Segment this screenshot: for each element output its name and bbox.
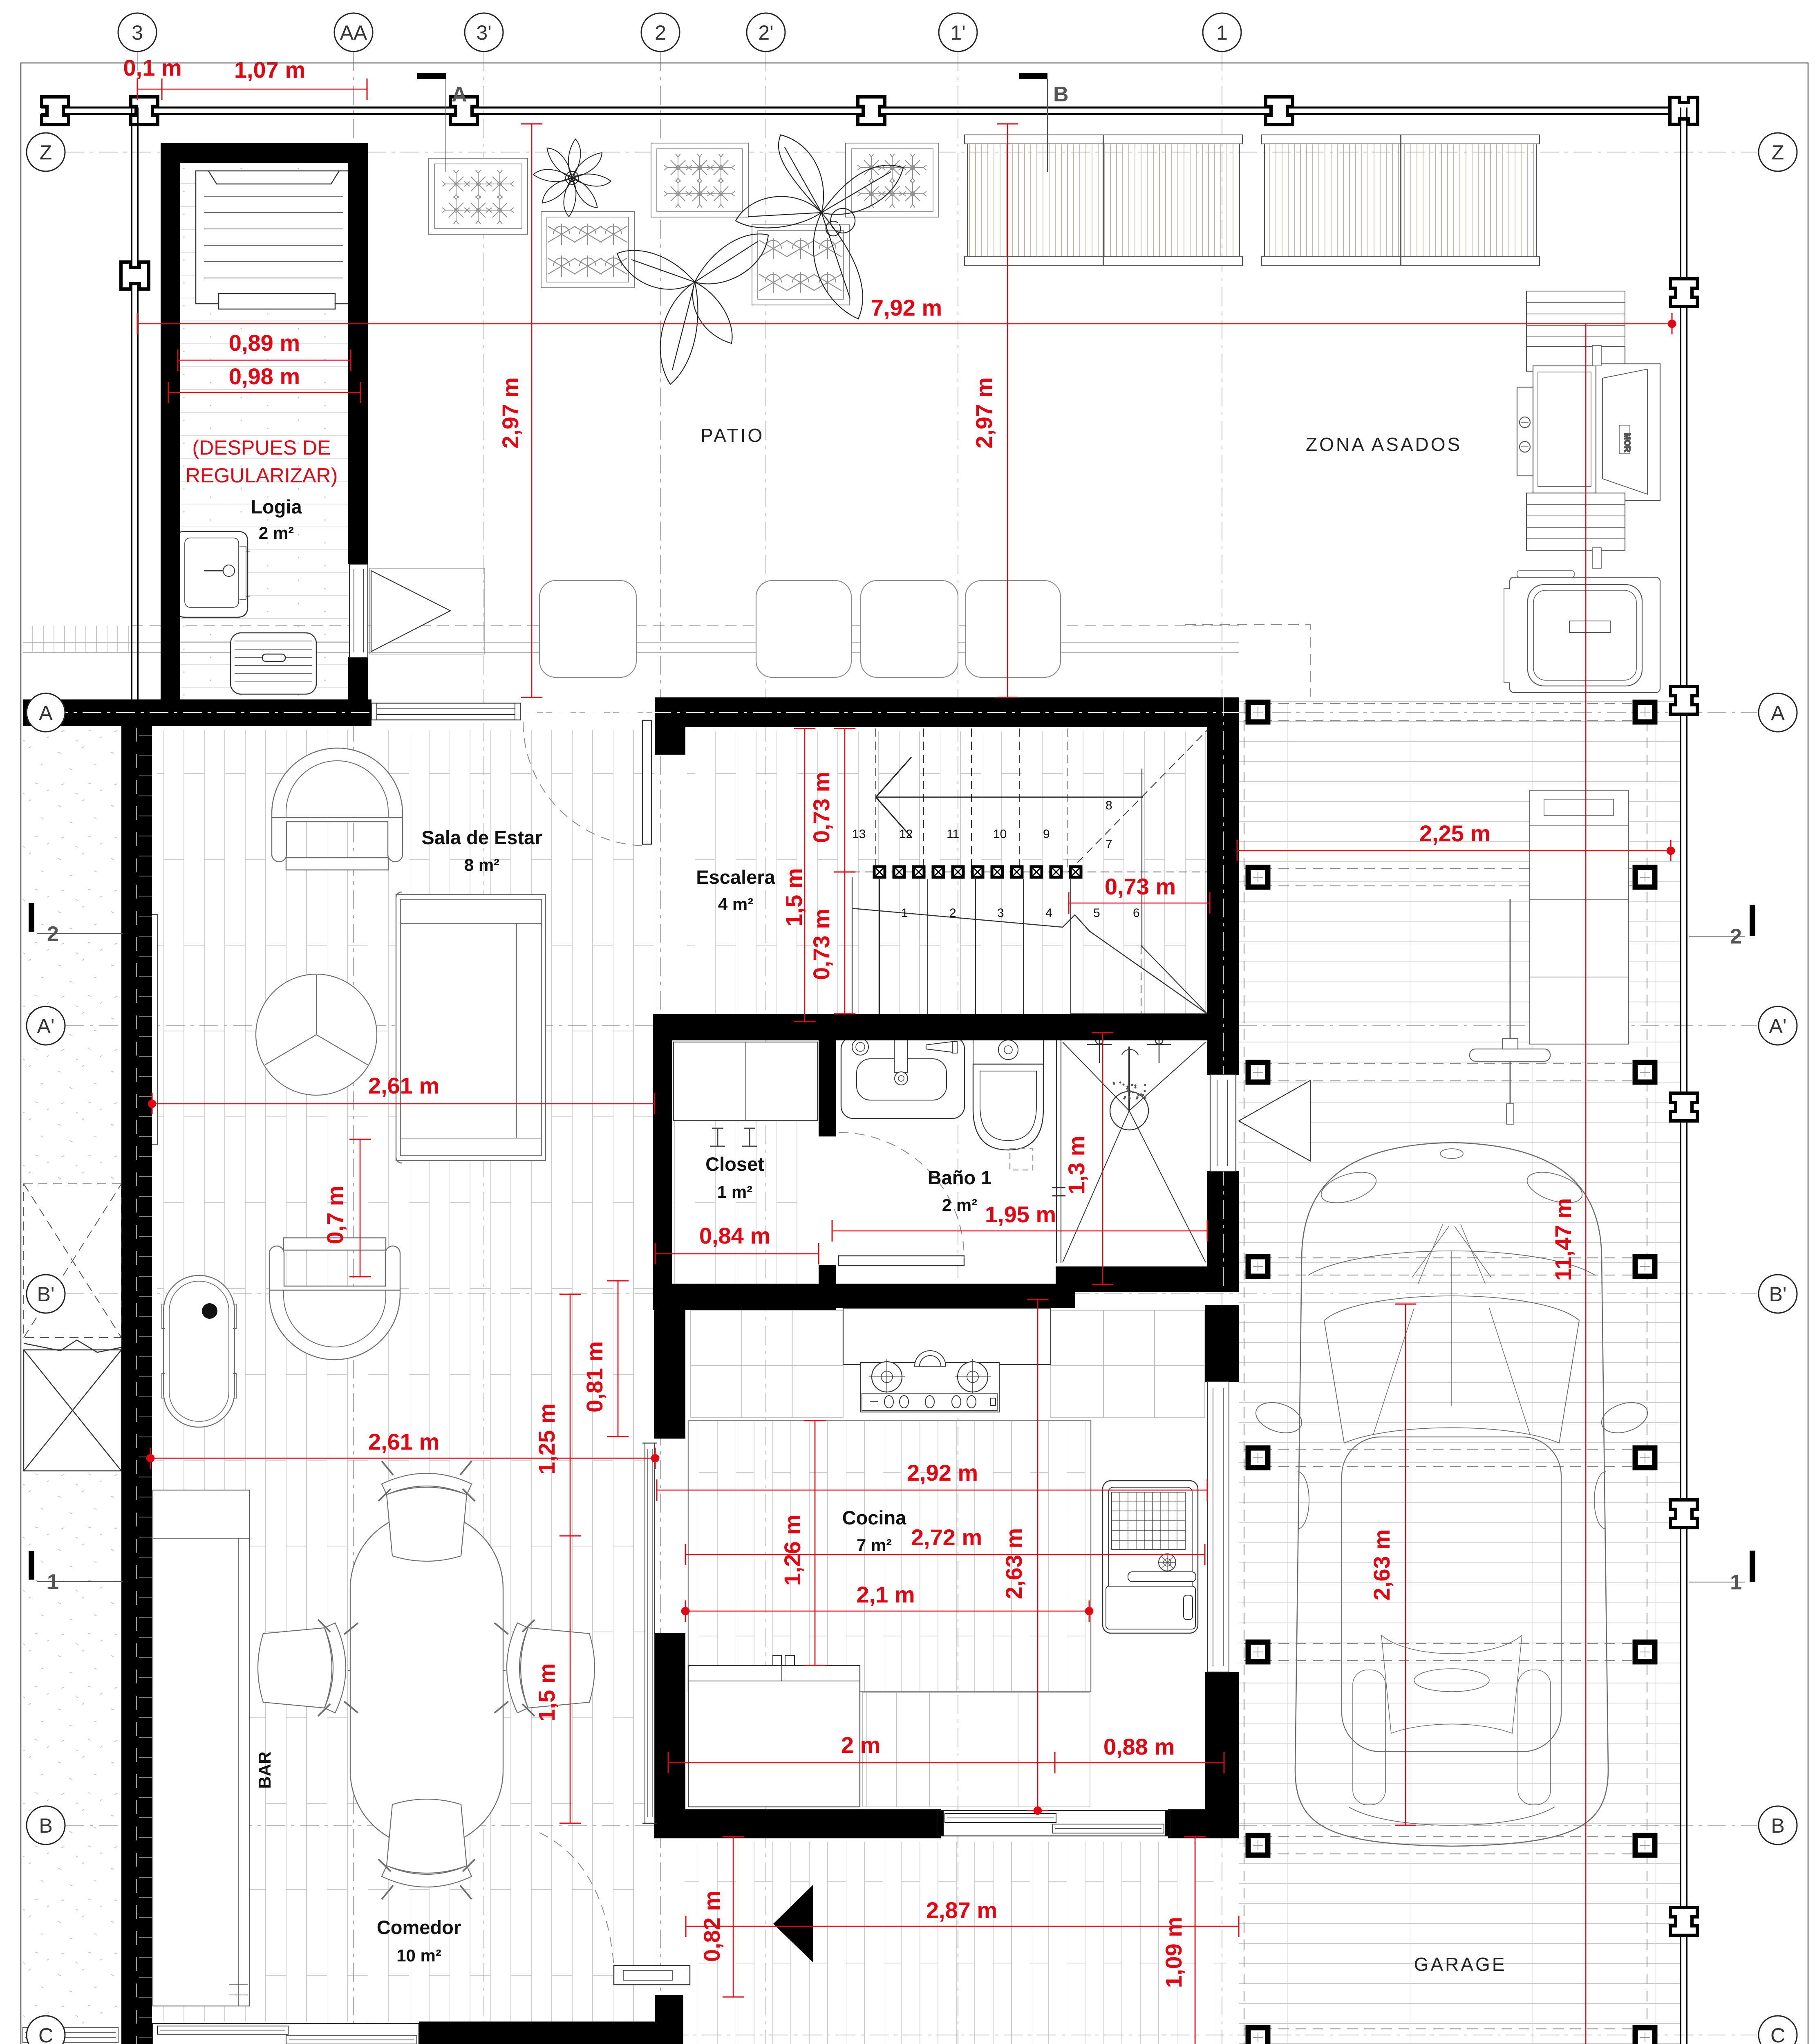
svg-text:0,1 m: 0,1 m [123,55,181,81]
svg-text:6: 6 [1133,906,1140,920]
svg-text:4 m²: 4 m² [718,894,753,914]
svg-text:10 m²: 10 m² [396,1946,441,1965]
svg-text:1,5 m: 1,5 m [534,1663,559,1721]
svg-text:B: B [39,1814,52,1837]
svg-text:1,95 m: 1,95 m [985,1201,1056,1227]
svg-text:GARAGE: GARAGE [1414,1954,1507,1975]
svg-text:A: A [39,702,53,724]
svg-text:2,97 m: 2,97 m [497,377,523,448]
svg-text:0,98 m: 0,98 m [229,363,300,389]
svg-text:8: 8 [1106,799,1112,812]
svg-text:0,7 m: 0,7 m [322,1186,348,1244]
svg-text:2,72 m: 2,72 m [911,1524,982,1550]
svg-text:PATIO: PATIO [700,425,764,446]
svg-text:Logia: Logia [251,496,302,518]
svg-text:3: 3 [997,906,1004,920]
svg-text:C: C [1770,2024,1785,2044]
svg-text:0,73 m: 0,73 m [1105,874,1176,899]
svg-text:2,61 m: 2,61 m [368,1429,439,1455]
svg-text:0,82 m: 0,82 m [699,1891,725,1962]
svg-text:2 m²: 2 m² [942,1195,977,1215]
svg-text:2,1 m: 2,1 m [856,1582,915,1607]
svg-text:0,73 m: 0,73 m [808,772,834,843]
svg-text:2: 2 [949,906,956,920]
svg-text:2 m: 2 m [841,1732,881,1758]
svg-text:Escalera: Escalera [696,866,775,888]
svg-text:11: 11 [947,827,959,841]
svg-text:12: 12 [899,827,913,841]
svg-text:(DESPUES DE: (DESPUES DE [192,436,331,459]
svg-text:2,63 m: 2,63 m [1369,1529,1394,1600]
svg-text:2,87 m: 2,87 m [926,1897,997,1923]
svg-text:2,25 m: 2,25 m [1419,820,1490,846]
svg-text:1,09 m: 1,09 m [1161,1917,1186,1988]
svg-text:4: 4 [1045,906,1052,920]
svg-text:7: 7 [1106,838,1112,851]
svg-text:2': 2' [758,21,773,44]
svg-text:7 m²: 7 m² [857,1535,892,1555]
svg-text:9: 9 [1043,827,1050,841]
svg-text:B: B [1771,1814,1784,1837]
svg-text:7,92 m: 7,92 m [871,295,942,320]
svg-text:0,81 m: 0,81 m [582,1341,607,1412]
svg-text:BAR: BAR [255,1752,274,1789]
svg-text:2: 2 [1730,925,1742,948]
svg-text:Cocina: Cocina [842,1507,907,1529]
svg-text:Closet: Closet [705,1153,764,1175]
svg-text:B: B [1053,83,1069,106]
svg-text:2,63 m: 2,63 m [1001,1528,1027,1599]
svg-text:13: 13 [852,827,866,841]
svg-text:1: 1 [1730,1571,1742,1594]
svg-text:MOR: MOR [1623,433,1631,452]
svg-text:1: 1 [47,1570,59,1594]
svg-text:C: C [38,2024,53,2044]
svg-text:1,07 m: 1,07 m [234,57,305,83]
svg-text:5: 5 [1093,906,1100,920]
svg-text:B': B' [37,1283,55,1306]
svg-text:B': B' [1769,1283,1787,1306]
svg-text:2: 2 [655,21,666,44]
svg-text:8 m²: 8 m² [464,855,499,874]
svg-text:0,73 m: 0,73 m [808,909,834,980]
svg-text:0,89 m: 0,89 m [229,330,300,356]
svg-text:0,88 m: 0,88 m [1103,1734,1175,1759]
svg-text:ZONA ASADOS: ZONA ASADOS [1306,434,1462,455]
svg-text:A': A' [1769,1015,1787,1038]
svg-text:3: 3 [132,21,143,44]
svg-text:2: 2 [47,922,59,946]
svg-text:1': 1' [950,21,965,44]
svg-text:2,61 m: 2,61 m [368,1073,439,1098]
svg-text:1,3 m: 1,3 m [1063,1136,1089,1194]
svg-text:1 m²: 1 m² [717,1182,752,1201]
svg-text:1,25 m: 1,25 m [534,1403,559,1475]
svg-text:10: 10 [993,827,1007,841]
svg-text:11,47 m: 11,47 m [1550,1198,1576,1281]
svg-text:1,5 m: 1,5 m [781,868,807,926]
svg-text:2,97 m: 2,97 m [971,377,997,448]
svg-text:A: A [452,83,467,106]
svg-text:A: A [1771,702,1785,724]
svg-text:Baño 1: Baño 1 [928,1167,992,1188]
svg-text:2,92 m: 2,92 m [907,1460,978,1486]
svg-text:1: 1 [901,906,908,920]
svg-text:Comedor: Comedor [377,1916,461,1938]
svg-text:Z: Z [40,141,52,164]
svg-text:Sala de Estar: Sala de Estar [421,827,542,848]
svg-text:1,26 m: 1,26 m [779,1515,805,1586]
svg-text:REGULARIZAR): REGULARIZAR) [186,464,338,487]
svg-text:3': 3' [476,21,491,44]
svg-text:1: 1 [1216,21,1228,44]
svg-text:A': A' [37,1015,55,1038]
svg-text:Z: Z [1772,141,1784,164]
svg-text:2 m²: 2 m² [259,523,294,542]
svg-text:AA: AA [340,21,367,44]
svg-text:0,84 m: 0,84 m [699,1223,770,1248]
